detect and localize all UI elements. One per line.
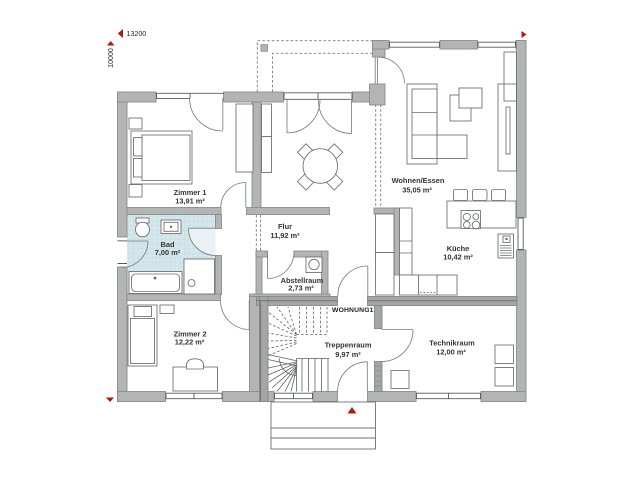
- svg-text:10,42 m²: 10,42 m²: [443, 253, 473, 262]
- svg-text:11,92 m²: 11,92 m²: [270, 231, 300, 240]
- svg-text:WOHNUNG1: WOHNUNG1: [332, 307, 374, 314]
- svg-text:2,73 m²: 2,73 m²: [288, 284, 314, 293]
- svg-text:9,97 m²: 9,97 m²: [335, 350, 361, 359]
- svg-text:13200: 13200: [127, 30, 147, 38]
- svg-text:Treppenraum: Treppenraum: [325, 341, 372, 350]
- svg-text:35,05 m²: 35,05 m²: [402, 186, 432, 195]
- svg-text:12,00 m²: 12,00 m²: [436, 348, 466, 357]
- svg-text:13,91 m²: 13,91 m²: [175, 197, 205, 206]
- svg-text:12,22 m²: 12,22 m²: [175, 338, 205, 347]
- svg-text:7,00 m²: 7,00 m²: [155, 248, 181, 257]
- svg-text:10000: 10000: [107, 48, 115, 68]
- svg-text:Wohnen/Essen: Wohnen/Essen: [392, 176, 445, 185]
- svg-text:Flur: Flur: [278, 222, 292, 231]
- svg-text:Technikraum: Technikraum: [429, 339, 475, 348]
